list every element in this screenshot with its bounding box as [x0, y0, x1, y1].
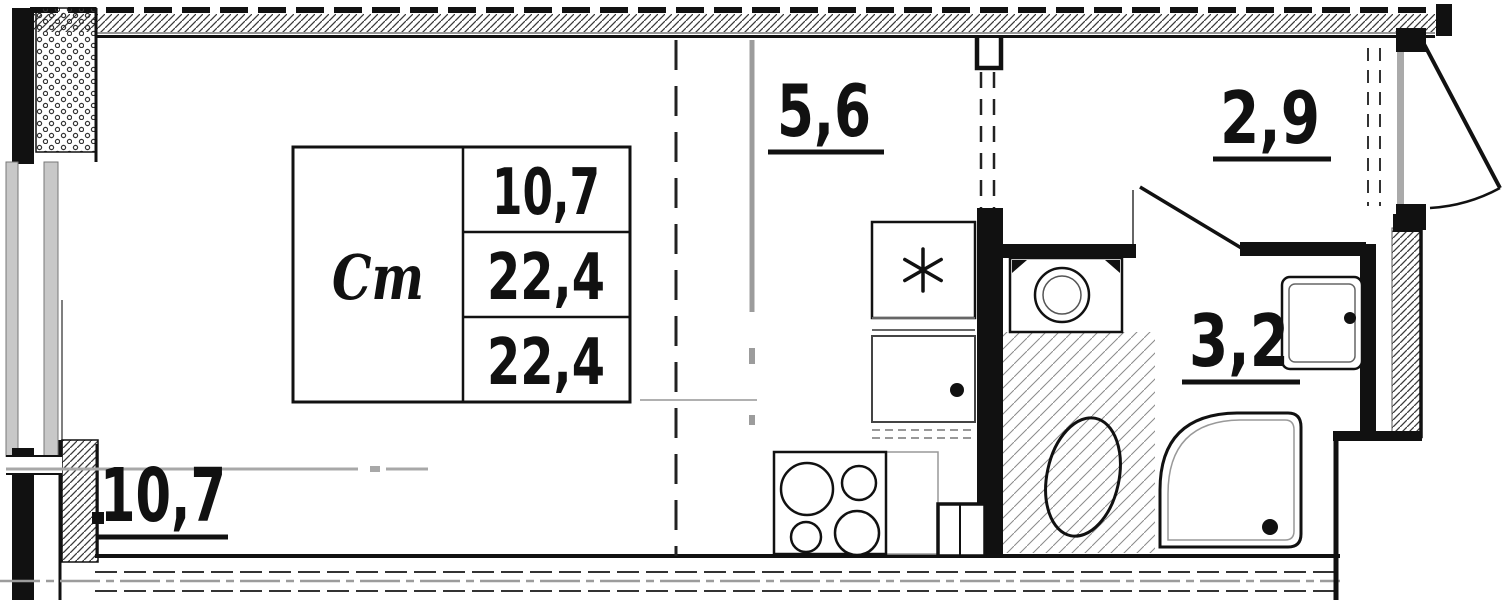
- left-exterior-wall: [5, 8, 104, 600]
- bathroom-top-wall-left: [1003, 244, 1136, 258]
- burner-bottom-left: [791, 522, 821, 552]
- kitchen-hall-wall-stub: [977, 36, 1001, 68]
- floor-plan-svg: Ст 10,7 22,4 22,4 5,6 2,9 3,2 10,7: [0, 0, 1508, 600]
- bathroom-area-label: 3,2: [1189, 299, 1289, 383]
- kitchen-sink-cabinet: [872, 336, 975, 422]
- table-living-area-value: 10,7: [492, 156, 600, 230]
- vertical-axis-dot: [749, 415, 755, 425]
- bathroom-fixtures: [1003, 258, 1362, 553]
- entrance-door-latch-jamb: [1396, 204, 1426, 230]
- kitchen-area-label: 5,6: [777, 69, 871, 153]
- ventilation-duct: [938, 504, 985, 556]
- counter-section: [886, 452, 938, 554]
- entrance-door: [1396, 28, 1500, 230]
- window-glazing-outer: [6, 162, 18, 458]
- bottom-exterior-wall: [0, 556, 1340, 591]
- entrance-door-leaf: [1424, 44, 1500, 188]
- bathroom-door: [1133, 187, 1243, 249]
- entrance-door-opening: [1397, 50, 1404, 206]
- burner-bottom-right: [835, 511, 879, 555]
- left-wall-pier-top: [12, 8, 34, 164]
- bathtub: [1160, 413, 1301, 547]
- entrance-door-hinge-jamb: [1396, 28, 1426, 52]
- area-table: Ст 10,7 22,4 22,4: [293, 147, 630, 402]
- unit-type-label: Ст: [332, 241, 424, 314]
- burner-top-right: [842, 466, 876, 500]
- vertical-axis-dash: [749, 348, 755, 364]
- top-wall-right-cap: [1436, 4, 1452, 36]
- bathroom-top-wall-right: [1240, 242, 1366, 256]
- hall-area-label: 2,9: [1220, 76, 1320, 160]
- kitchen-fixtures: [774, 222, 985, 556]
- horizontal-axis-dot: [370, 466, 380, 472]
- floor-plan-page: Ст 10,7 22,4 22,4 5,6 2,9 3,2 10,7: [0, 0, 1508, 600]
- top-exterior-wall: [30, 4, 1452, 37]
- sink-faucet-dot: [950, 383, 964, 397]
- window-sill-gap: [5, 457, 62, 473]
- entrance-door-swing-arc: [1430, 188, 1500, 208]
- table-total-area-value: 22,4: [487, 241, 605, 315]
- bathroom-door-leaf: [1140, 187, 1243, 249]
- left-wall-insulation-block: [36, 8, 96, 152]
- right-step-wall: [1333, 431, 1422, 441]
- bathroom-floor-hatch: [1003, 332, 1155, 553]
- burner-top-left: [781, 463, 833, 515]
- left-wall-hatch-block: [62, 440, 98, 562]
- table-reduced-area-value: 22,4: [487, 326, 605, 400]
- living-area-label: 10,7: [100, 453, 226, 539]
- right-exterior-wall-hatch: [1392, 228, 1422, 438]
- top-wall-hatch: [30, 14, 1448, 32]
- bathtub-drain-dot: [1262, 519, 1278, 535]
- window-glazing-inner: [44, 162, 58, 458]
- washbasin-faucet-dot: [1344, 312, 1356, 324]
